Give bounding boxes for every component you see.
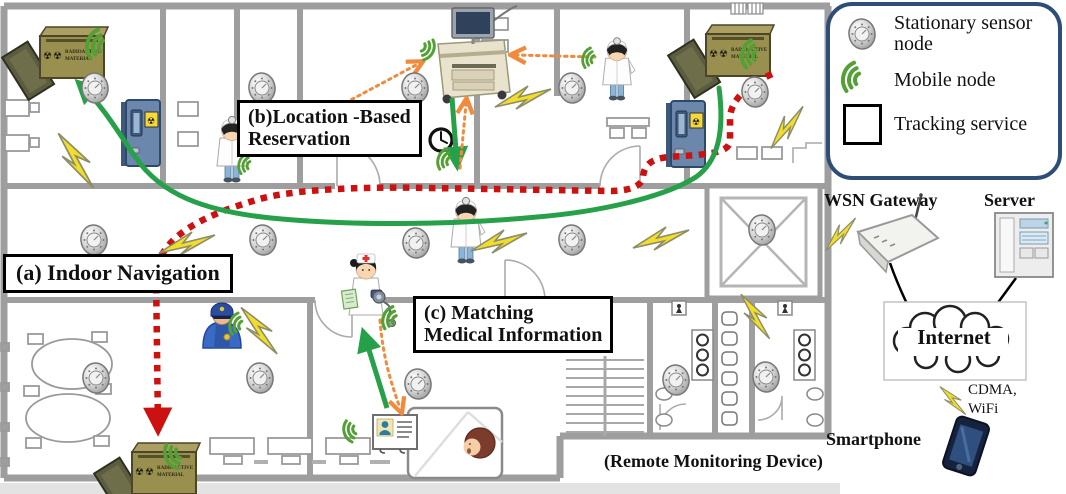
urinals <box>722 312 737 425</box>
stationary-sensor-node <box>79 223 109 256</box>
legend-label: Mobile node <box>894 70 996 91</box>
stairs <box>566 356 644 436</box>
tracking-service-icon <box>840 104 884 145</box>
doctor-room-right <box>603 38 635 101</box>
legend-item-tracking-service: Tracking service <box>840 104 1050 145</box>
label-line: (c) Matching <box>424 302 602 324</box>
label-indoor-navigation: (a) Indoor Navigation <box>3 254 233 293</box>
legend: Stationary sensor node Mobile node Track… <box>826 2 1062 180</box>
legend-item-mobile-node: Mobile node <box>840 58 1050 102</box>
wireless-link-bolt-icon <box>939 381 968 420</box>
mobile-node-arcs-icon <box>418 38 437 62</box>
green-arrow-cart-to-doctor <box>452 98 457 164</box>
server-device <box>995 213 1053 277</box>
cdma-wifi-label: CDMA, WiFi <box>968 381 1017 419</box>
wireless-link-bolt-icon <box>633 227 689 250</box>
stationary-sensor-node <box>248 223 278 256</box>
conference-tables <box>1 332 112 466</box>
stationary-sensor-node <box>245 361 275 394</box>
stationary-sensor-icon <box>840 12 884 56</box>
label-line: (b)Location -Based <box>248 106 411 128</box>
legend-item-stationary-sensor: Stationary sensor node <box>840 12 1050 56</box>
stationary-sensor-node <box>751 360 781 393</box>
link-line: CDMA, <box>968 381 1017 400</box>
shielded-door-left <box>121 100 160 166</box>
label-line: Reservation <box>248 128 411 150</box>
server-label: Server <box>984 190 1035 211</box>
label-matching-medical-information: (c) Matching Medical Information <box>413 296 613 353</box>
wireless-link-bolt-icon <box>239 300 280 360</box>
wsn-hospital-diagram: ☢ ☢ RADIOACTIVE MATERIAL ☢ <box>0 0 1066 494</box>
legend-label: Stationary sensor node <box>894 13 1050 55</box>
link-line: WiFi <box>968 400 1017 419</box>
orange-link-corridor-to-cart <box>460 104 466 168</box>
stationary-sensor-node <box>557 223 587 256</box>
clock-icon <box>430 129 452 151</box>
stationary-sensor-node <box>403 367 433 400</box>
label-location-based-reservation: (b)Location -Based Reservation <box>237 100 422 157</box>
remote-monitoring-label: (Remote Monitoring Device) <box>604 451 823 472</box>
internet-label: Internet <box>898 325 1010 350</box>
patient-bed <box>408 408 502 478</box>
stationary-sensor-node <box>401 226 431 259</box>
smartphone-device <box>941 415 990 477</box>
green-arrow-card-to-nurse <box>364 334 387 408</box>
legend-label: Tracking service <box>894 114 1027 135</box>
patient-id-card <box>373 415 417 453</box>
doctor-corridor <box>451 197 485 263</box>
hazmat-box-bottom <box>94 443 200 494</box>
smartphone-label: Smartphone <box>826 429 921 450</box>
mobile-node-icon <box>840 58 884 102</box>
wsn-gateway-label: WSN Gateway <box>824 190 938 211</box>
label-line: Medical Information <box>424 324 602 346</box>
stationary-sensor-node <box>740 75 770 108</box>
restrooms <box>656 301 823 426</box>
stationary-sensor-node <box>557 71 587 104</box>
